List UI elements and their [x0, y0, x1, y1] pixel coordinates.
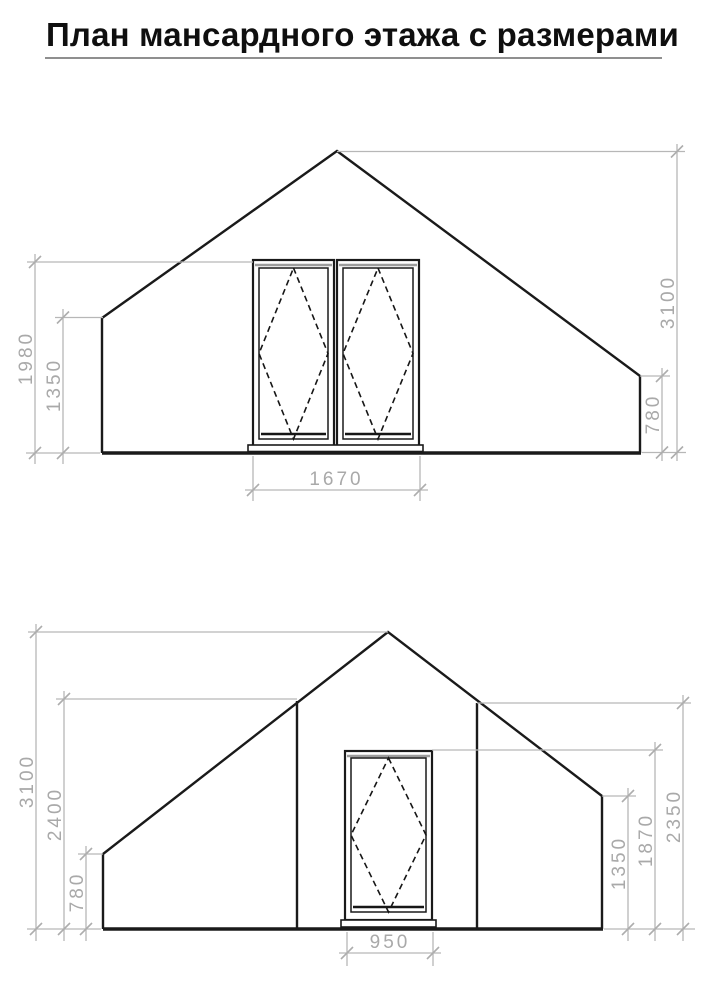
dim-label: 1350	[44, 358, 65, 412]
dim-top-left-inner: 1350	[44, 309, 69, 464]
top-window-right	[337, 260, 419, 446]
top-window-sill	[248, 445, 423, 452]
dim-label: 780	[67, 872, 88, 913]
dim-label: 780	[643, 394, 664, 435]
bottom-window-sill	[341, 920, 436, 927]
drawing-canvas: 1980 1350 3100	[0, 0, 716, 990]
top-elevation: 1980 1350 3100	[16, 144, 686, 501]
dim-label: 1350	[609, 836, 630, 890]
dim-bottom-width: 950	[339, 932, 441, 966]
dim-bottom-left-outer: 3100	[17, 624, 42, 941]
dim-label: 1870	[636, 813, 657, 867]
dim-bottom-left-inner: 780	[67, 846, 92, 941]
bottom-window	[345, 751, 432, 920]
dim-bottom-right-outer: 2350	[664, 695, 689, 941]
dim-top-right-inner: 780	[643, 368, 668, 461]
dim-label: 3100	[17, 754, 38, 808]
dim-label: 2350	[664, 789, 685, 843]
dim-label: 1980	[16, 331, 37, 385]
dim-bottom-right-mid: 1870	[636, 742, 661, 941]
bottom-elevation: 3100 2400 780	[17, 624, 695, 966]
dim-label: 2400	[45, 787, 66, 841]
dim-bottom-right-inner: 1350	[609, 788, 634, 941]
attic-plan-page: План мансардного этажа с размерами	[0, 0, 716, 990]
top-window-left	[253, 260, 334, 446]
dim-top-left-outer: 1980	[16, 254, 41, 464]
dim-label: 950	[370, 932, 411, 953]
dim-label: 1670	[309, 469, 363, 490]
dim-label: 3100	[658, 275, 679, 329]
dim-top-width: 1670	[245, 456, 428, 501]
